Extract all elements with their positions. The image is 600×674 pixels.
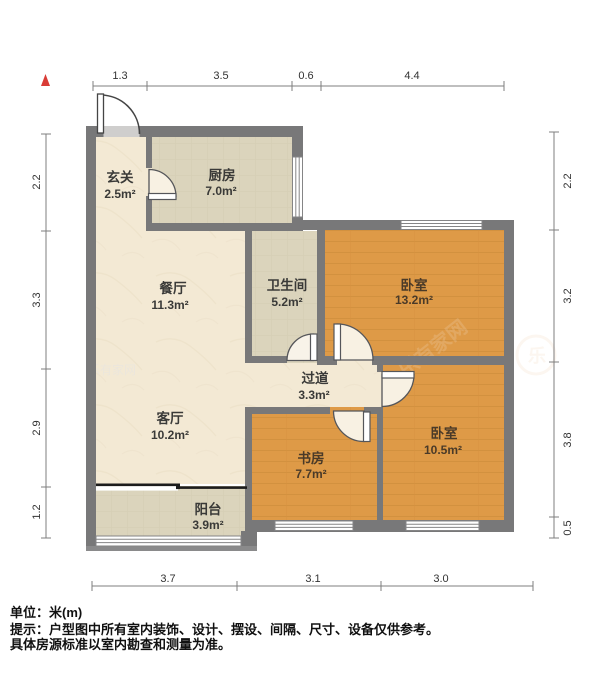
svg-text:餐厅: 餐厅	[159, 280, 187, 296]
svg-text:具体房源标准以室内勘查和测量为准。: 具体房源标准以室内勘查和测量为准。	[10, 637, 231, 652]
svg-text:玄关: 玄关	[107, 169, 134, 185]
svg-text:4.4: 4.4	[404, 70, 419, 82]
svg-text:13.2m²: 13.2m²	[395, 293, 433, 307]
svg-text:提示：户型图中所有室内装饰、设计、摆设、间隔、尺寸、设备仅供: 提示：户型图中所有室内装饰、设计、摆设、间隔、尺寸、设备仅供参考。	[10, 622, 439, 637]
svg-text:11.3m²: 11.3m²	[151, 298, 188, 312]
svg-text:2.9: 2.9	[31, 420, 43, 435]
svg-text:卫生间: 卫生间	[267, 277, 308, 293]
svg-text:3.7: 3.7	[160, 573, 175, 585]
svg-text:厨房: 厨房	[209, 167, 236, 183]
svg-text:书房: 书房	[298, 450, 325, 466]
svg-text:2.5m²: 2.5m²	[104, 187, 135, 201]
svg-text:3.9m²: 3.9m²	[192, 518, 223, 532]
svg-text:阳台: 阳台	[195, 501, 222, 517]
svg-text:3.3: 3.3	[31, 292, 43, 307]
svg-text:5.2m²: 5.2m²	[271, 295, 302, 309]
svg-text:3.1: 3.1	[305, 573, 320, 585]
svg-text:3.5: 3.5	[213, 70, 228, 82]
svg-text:7.0m²: 7.0m²	[205, 184, 236, 198]
svg-text:过道: 过道	[302, 370, 329, 386]
svg-text:乐: 乐	[528, 346, 546, 366]
svg-text:1.2: 1.2	[31, 504, 43, 519]
svg-text:单位：米(m): 单位：米(m)	[10, 605, 82, 620]
svg-text:客厅: 客厅	[156, 410, 184, 426]
svg-text:7.7m²: 7.7m²	[295, 467, 326, 481]
svg-text:2.2: 2.2	[562, 173, 574, 188]
svg-text:3.0: 3.0	[433, 573, 448, 585]
svg-text:10.2m²: 10.2m²	[151, 428, 189, 442]
svg-text:卧室: 卧室	[401, 277, 428, 293]
svg-text:卧室: 卧室	[431, 425, 458, 441]
svg-text:10.5m²: 10.5m²	[424, 443, 462, 457]
svg-text:3.2: 3.2	[562, 288, 574, 303]
svg-text:0.6: 0.6	[298, 70, 313, 82]
svg-text:3.3m²: 3.3m²	[298, 388, 329, 402]
svg-text:2.2: 2.2	[31, 174, 43, 189]
svg-text:3.8: 3.8	[562, 432, 574, 447]
svg-text:0.5: 0.5	[562, 520, 574, 535]
svg-text:1.3: 1.3	[112, 70, 127, 82]
